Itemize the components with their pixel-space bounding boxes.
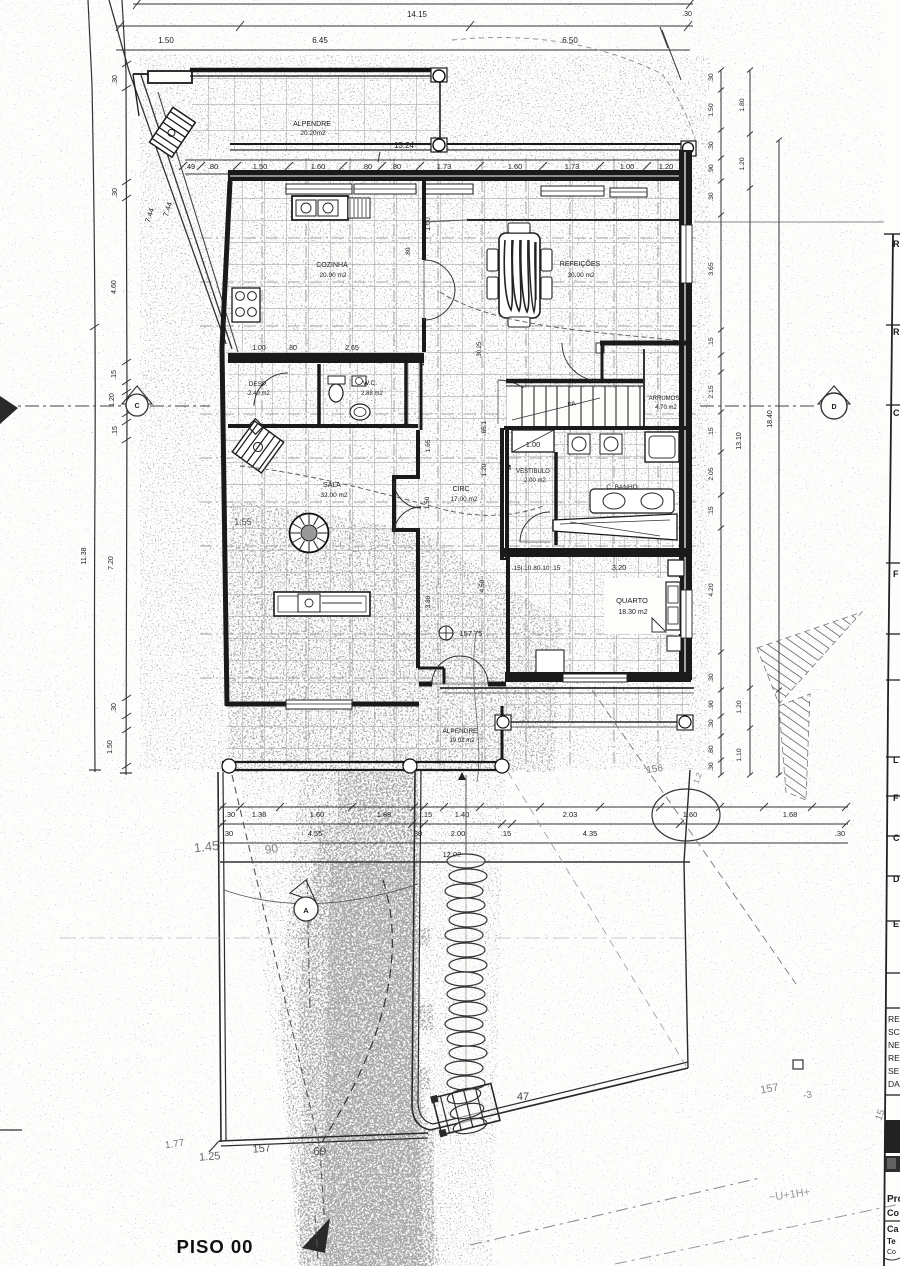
svg-text:19.02 m2: 19.02 m2 [449,738,475,744]
svg-text:.30: .30 [708,192,715,202]
svg-text:ARRUMOS: ARRUMOS [649,396,680,402]
svg-text:1.50: 1.50 [253,162,268,171]
svg-text:.65.1: .65.1 [481,420,488,435]
svg-text:1.73: 1.73 [437,162,452,171]
svg-text:1.60: 1.60 [683,810,698,819]
svg-text:PISO 00: PISO 00 [177,1236,254,1257]
svg-text:2.40 m2: 2.40 m2 [248,391,270,397]
svg-text:.30: .30 [708,762,715,772]
svg-text:1.68: 1.68 [783,810,798,819]
svg-text:Co: Co [887,1208,899,1218]
svg-text:.30.25: .30.25 [477,341,483,358]
svg-text:1.60: 1.60 [310,810,325,819]
svg-text:1.65: 1.65 [425,439,432,452]
svg-text:1.20: 1.20 [659,162,674,171]
svg-text:DA: DA [888,1079,900,1089]
svg-text:2.05: 2.05 [708,467,715,480]
svg-text:RE: RE [888,1053,900,1063]
svg-text:.15: .15 [708,506,715,516]
svg-text:69: 69 [313,1144,327,1159]
svg-text:1.00: 1.00 [252,345,266,352]
svg-text:.15: .15 [112,426,119,436]
svg-text:.15|.10.80.10 .15: .15|.10.80.10 .15 [512,565,561,572]
svg-text:F: F [893,793,899,803]
svg-text:1.60: 1.60 [425,217,432,231]
svg-text:.30: .30 [708,719,715,729]
svg-text:NE: NE [888,1040,900,1050]
svg-text:1.00: 1.00 [526,440,541,449]
svg-text:.80: .80 [405,247,412,256]
svg-text:.30: .30 [112,188,119,198]
svg-text:18.40: 18.40 [767,410,774,428]
svg-text:1.40: 1.40 [455,810,470,819]
svg-text:1.50: 1.50 [708,103,715,116]
svg-text:4.35: 4.35 [583,829,598,838]
svg-text:1.80: 1.80 [739,98,746,111]
svg-text:20.20m2: 20.20m2 [300,130,326,137]
svg-text:14.15: 14.15 [407,10,428,19]
svg-text:A: A [303,906,309,915]
svg-text:.15: .15 [111,370,118,380]
svg-text:.30: .30 [112,75,119,85]
svg-text:.80: .80 [208,162,218,171]
svg-text:.30: .30 [223,829,233,838]
svg-text:4.20: 4.20 [708,583,715,596]
svg-text:2.15: 2.15 [708,385,715,398]
svg-text:.15: .15 [708,427,715,437]
svg-text:ALPENDRE: ALPENDRE [293,121,331,128]
svg-text:18.30 m2: 18.30 m2 [618,609,647,616]
svg-text:2.03: 2.03 [563,810,578,819]
svg-text:1.73: 1.73 [565,162,580,171]
svg-text:1.20: 1.20 [739,157,746,170]
svg-text:F: F [893,569,899,579]
svg-text:3.65: 3.65 [708,262,715,275]
svg-text:4.60: 4.60 [111,280,118,294]
svg-text:L: L [893,755,899,765]
svg-text:1.10: 1.10 [736,748,743,761]
svg-text:VESTIBULO: VESTIBULO [516,469,550,475]
svg-text:R: R [893,239,900,249]
svg-text:11.38: 11.38 [81,547,88,564]
svg-text:.30: .30 [708,673,715,683]
svg-text:RE: RE [888,1014,900,1024]
svg-text:2.00 m2: 2.00 m2 [524,478,546,484]
svg-text:1.38: 1.38 [252,810,267,819]
svg-text:13.10: 13.10 [736,432,743,450]
svg-text:Co: Co [887,1249,896,1256]
svg-text:1.88: 1.88 [377,810,392,819]
svg-text:3.20: 3.20 [612,563,627,572]
svg-text:D: D [831,404,836,411]
svg-text:C: C [893,408,900,418]
svg-text:.90: .90 [708,700,715,710]
svg-text:7.20: 7.20 [108,556,115,570]
svg-text:SE: SE [888,1066,900,1076]
svg-text:.30: .30 [835,829,845,838]
svg-text:.80: .80 [708,745,715,755]
svg-text:DESP.: DESP. [249,381,268,388]
svg-text:17.00 m2: 17.00 m2 [450,496,477,503]
svg-text:1.60: 1.60 [311,162,326,171]
svg-text:.30: .30 [225,810,235,819]
svg-text:COZINHA: COZINHA [316,262,348,269]
svg-text:ALPENDRE: ALPENDRE [442,728,478,735]
svg-text:6.45: 6.45 [312,36,328,45]
svg-text:.15: .15 [501,829,511,838]
svg-text:D: D [893,874,900,884]
svg-text:C: C [134,403,139,410]
svg-text:3.80: 3.80 [425,595,432,608]
svg-text:1.45: 1.45 [193,838,220,856]
svg-text:Pro: Pro [887,1194,900,1205]
svg-text:2.88 m2: 2.88 m2 [361,391,383,397]
svg-text:E: E [893,919,899,929]
svg-text:1.50: 1.50 [107,740,114,754]
svg-text:.30: .30 [708,141,715,151]
svg-text:1.20: 1.20 [736,700,743,713]
svg-text:1.50: 1.50 [158,36,174,45]
svg-text:1.20: 1.20 [109,393,116,407]
svg-text:.30: .30 [682,11,692,18]
svg-text:1.60: 1.60 [508,162,523,171]
svg-text:4.55: 4.55 [308,829,323,838]
svg-text:SC: SC [888,1027,900,1037]
svg-text:1.00: 1.00 [620,162,635,171]
svg-text:157.75: 157.75 [460,629,483,638]
svg-text:.30: .30 [708,73,715,83]
svg-text:QUARTO: QUARTO [616,596,648,605]
svg-text:.30: .30 [111,703,118,713]
svg-text:1.50: 1.50 [424,496,431,509]
svg-text:32.00 m2: 32.00 m2 [320,492,347,499]
svg-text:.15: .15 [422,810,432,819]
svg-text:90: 90 [264,841,279,857]
svg-text:4.70 m2: 4.70 m2 [655,405,677,411]
svg-text:CIRC: CIRC [452,486,469,493]
svg-text:M: M [505,465,511,472]
svg-text:R: R [893,327,900,337]
svg-text:.90: .90 [708,164,715,174]
svg-text:1.55: 1.55 [234,517,252,527]
svg-text:.80: .80 [287,345,297,352]
svg-text:W.C.: W.C. [363,380,377,387]
svg-text:47: 47 [517,1091,529,1103]
svg-text:2.00: 2.00 [451,829,466,838]
svg-text:20.90 m2: 20.90 m2 [319,272,346,279]
svg-text:.80: .80 [391,162,401,171]
svg-text:30.00 m2: 30.00 m2 [567,272,594,279]
svg-text:Te: Te [887,1237,896,1246]
svg-text:13.24: 13.24 [394,141,415,150]
svg-text:C: C [893,833,900,843]
svg-text:4.50: 4.50 [479,579,486,592]
svg-text:.15: .15 [708,337,715,347]
svg-text:Ca: Ca [887,1224,899,1234]
svg-text:1.20: 1.20 [481,463,488,476]
svg-text:.80: .80 [362,162,372,171]
svg-text:2.65: 2.65 [345,345,359,352]
svg-text:1.25: 1.25 [199,1150,221,1163]
svg-text:157: 157 [252,1142,271,1156]
svg-text:REFEIÇÕES: REFEIÇÕES [560,259,601,268]
